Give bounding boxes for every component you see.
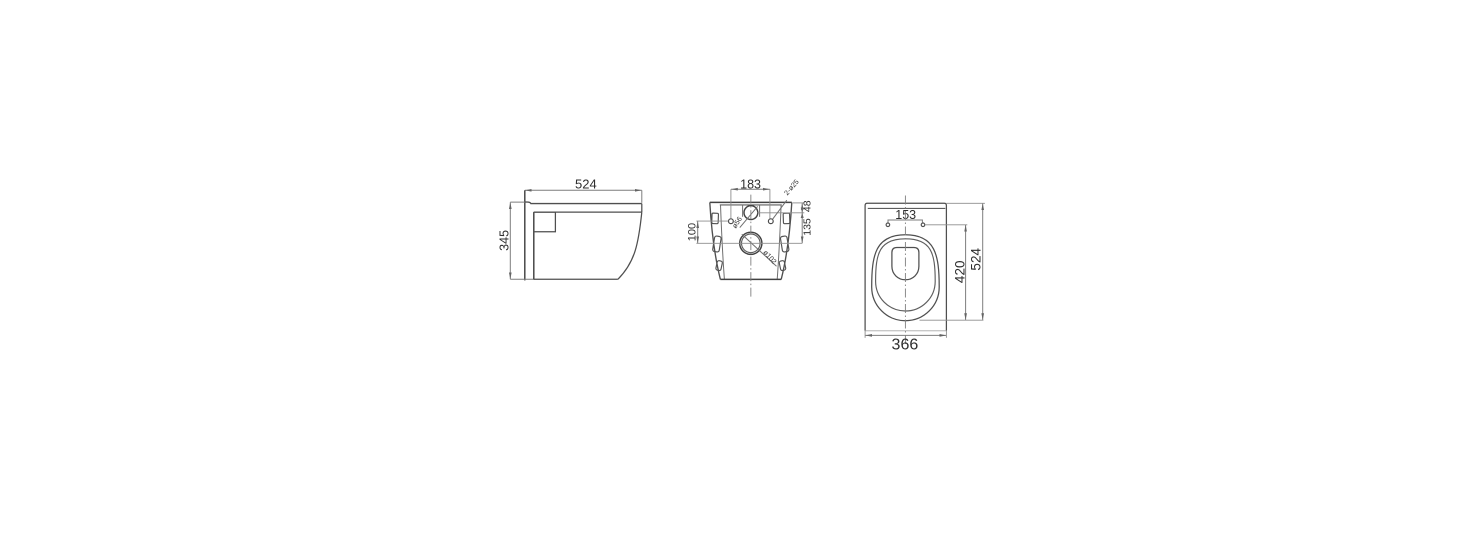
svg-text:2-ø25: 2-ø25 (783, 179, 800, 197)
svg-text:135: 135 (801, 218, 813, 236)
svg-text:ø102: ø102 (761, 249, 777, 266)
svg-text:ø56: ø56 (732, 216, 744, 230)
svg-text:48: 48 (801, 200, 813, 212)
svg-text:345: 345 (498, 230, 512, 251)
svg-text:524: 524 (575, 177, 597, 192)
svg-text:420: 420 (953, 261, 968, 284)
svg-text:366: 366 (892, 336, 919, 353)
svg-text:524: 524 (969, 248, 984, 271)
svg-text:100: 100 (687, 223, 699, 241)
svg-text:183: 183 (740, 178, 761, 192)
